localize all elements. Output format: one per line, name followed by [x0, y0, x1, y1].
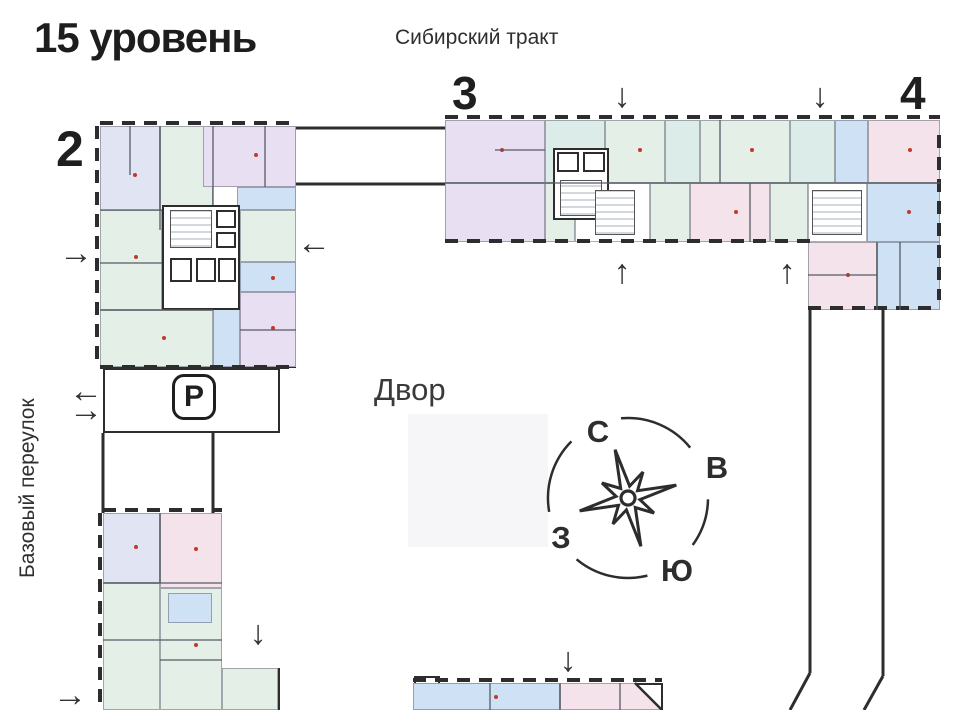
- courtyard-label: Двор: [374, 372, 446, 408]
- compass-west-label: З: [551, 520, 570, 556]
- apartment-unit: [203, 126, 296, 187]
- unit-marker-dot: [134, 545, 138, 549]
- apartment-unit: [103, 583, 160, 710]
- entrance-arrow-down: ↓: [614, 79, 631, 113]
- stairs: [595, 190, 635, 235]
- entrance-arrow-up: ↑: [779, 255, 796, 289]
- apartment-unit: [770, 183, 808, 242]
- street-label-top: Сибирский тракт: [395, 26, 558, 50]
- unit-marker-dot: [734, 210, 738, 214]
- elevator-shaft: [583, 152, 605, 172]
- apartment-unit: [445, 183, 545, 242]
- balcony-edge: [100, 121, 296, 125]
- unit-marker-dot: [271, 326, 275, 330]
- apartment-unit: [835, 120, 868, 183]
- balcony-edge: [808, 306, 940, 310]
- compass-south-label: Ю: [661, 553, 693, 589]
- stairs: [812, 190, 862, 235]
- apartment-unit: [222, 668, 278, 710]
- page-title: 15 уровень: [34, 14, 256, 62]
- entrance-arrow-down: ↓: [812, 79, 829, 113]
- apartment-unit: [877, 242, 940, 310]
- unit-marker-dot: [194, 643, 198, 647]
- balcony-edge: [98, 513, 102, 710]
- apartment-unit: [168, 593, 212, 623]
- compass-east-label: В: [706, 450, 728, 486]
- building-4-label[interactable]: 4: [900, 70, 926, 116]
- parking-icon: P: [172, 374, 216, 420]
- apartment-unit: [240, 210, 296, 262]
- apartment-unit: [605, 120, 665, 183]
- apartment-unit: [237, 187, 296, 210]
- unit-marker-dot: [254, 153, 258, 157]
- balcony-edge: [445, 239, 810, 243]
- entrance-arrow-left: ←: [297, 226, 331, 260]
- elevator-shaft: [216, 210, 236, 228]
- entrance-arrow-right: →: [59, 236, 93, 270]
- unit-marker-dot: [500, 148, 504, 152]
- balcony-edge: [937, 135, 941, 300]
- unit-marker-dot: [134, 255, 138, 259]
- building-3-label[interactable]: 3: [452, 70, 478, 116]
- apartment-unit: [868, 120, 940, 183]
- unit-marker-dot: [846, 273, 850, 277]
- balcony-edge: [445, 115, 940, 119]
- entrance-arrow-right: →: [69, 393, 103, 427]
- apartment-unit: [240, 292, 296, 367]
- apartment-unit: [240, 262, 296, 292]
- compass-rose-icon: [508, 378, 748, 618]
- balcony-edge: [100, 365, 296, 369]
- balcony-edge: [95, 126, 99, 368]
- apartment-unit: [690, 183, 770, 242]
- unit-marker-dot: [271, 276, 275, 280]
- apartment-unit: [413, 683, 560, 710]
- building-2-label[interactable]: 2: [56, 124, 84, 174]
- entrance-arrow-down: ↓: [250, 616, 267, 650]
- apartment-unit: [700, 120, 790, 183]
- apartment-unit: [103, 513, 160, 583]
- compass-north-label: С: [587, 414, 609, 450]
- apartment-unit: [808, 242, 877, 310]
- apartment-unit: [790, 120, 835, 183]
- unit-marker-dot: [194, 547, 198, 551]
- elevator-shaft: [216, 232, 236, 248]
- elevator-shaft: [557, 152, 579, 172]
- unit-marker-dot: [494, 695, 498, 699]
- entrance-arrow-right: →: [53, 678, 87, 710]
- unit-marker-dot: [908, 148, 912, 152]
- balcony-edge: [103, 508, 222, 512]
- apartment-unit: [100, 310, 213, 367]
- unit-marker-dot: [133, 173, 137, 177]
- stairs: [170, 210, 212, 248]
- street-label-left: Базовый переулок: [16, 398, 40, 578]
- apartment-unit: [445, 120, 545, 183]
- apartment-unit: [867, 183, 940, 242]
- elevator-shaft: [218, 258, 236, 282]
- elevator-shaft: [170, 258, 192, 282]
- apartment-unit: [665, 120, 700, 183]
- elevator-shaft: [196, 258, 216, 282]
- wall-line: [864, 676, 883, 710]
- entrance-arrow-down: ↓: [560, 643, 577, 677]
- unit-marker-dot: [750, 148, 754, 152]
- entrance-arrow-up: ↑: [614, 255, 631, 289]
- wall-line: [790, 673, 810, 710]
- apartment-unit: [100, 210, 162, 310]
- unit-marker-dot: [907, 210, 911, 214]
- apartment-unit: [160, 513, 222, 588]
- unit-marker-dot: [638, 148, 642, 152]
- unit-marker-dot: [162, 336, 166, 340]
- floor-plan-canvas: 15 уровень Сибирский тракт Базовый переу…: [0, 0, 960, 710]
- balcony-edge: [413, 678, 662, 682]
- apartment-unit: [650, 183, 690, 242]
